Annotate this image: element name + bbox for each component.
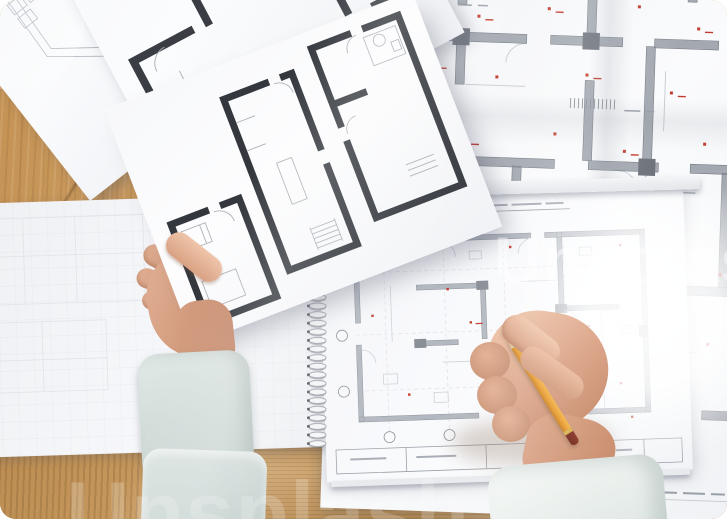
left-sleeve-cuff <box>140 448 267 519</box>
right-hand-knuckle <box>470 342 510 380</box>
right-hand-knuckle <box>492 406 530 442</box>
desk-photo: Top-down photo of an architect's wooden … <box>0 0 727 519</box>
spiral-binding <box>306 276 330 448</box>
